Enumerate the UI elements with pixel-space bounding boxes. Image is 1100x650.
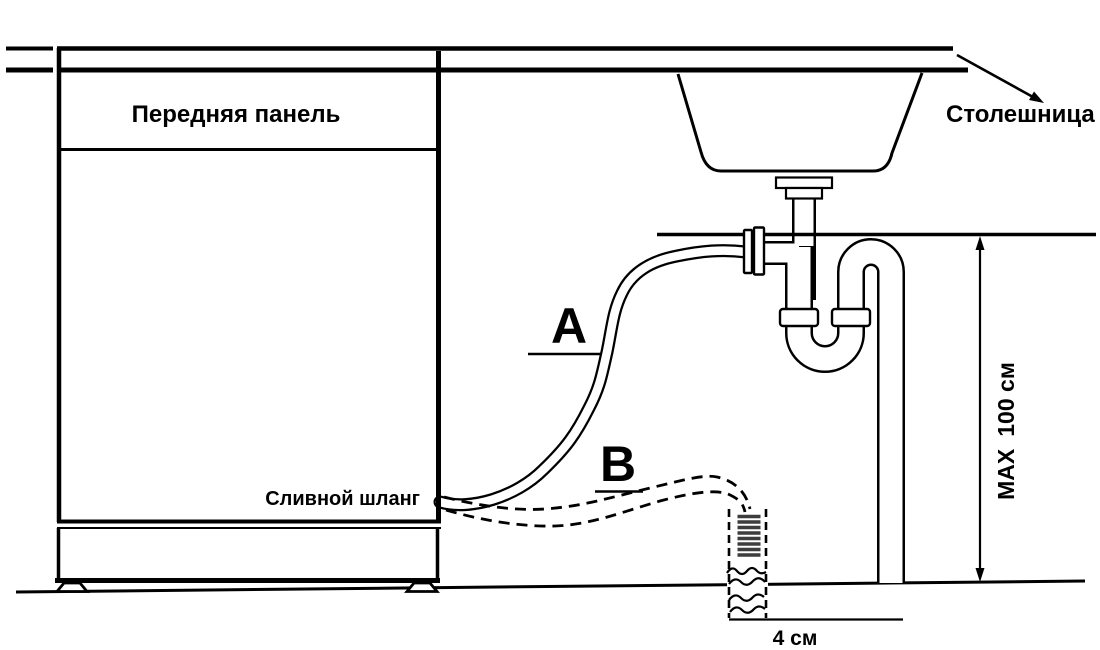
drain-hose-label: Сливной шланг: [240, 488, 420, 511]
standpipe: [727, 509, 768, 619]
option-b-label: B: [587, 437, 649, 491]
countertop-pointer-arrow: [957, 55, 1044, 103]
hose-connector-fitting: [744, 228, 764, 275]
countertop-label: Столешница: [946, 101, 1098, 129]
standpipe-width-label: 4 см: [752, 627, 838, 650]
max-height-value: 100 см: [993, 362, 1020, 437]
max-height-dimension-arrow: [976, 236, 985, 582]
max-prefix-text: MAX: [993, 449, 1020, 500]
installation-diagram: Передняя панель Столешница Сливной шланг…: [0, 0, 1100, 650]
sink-drain-flange: [776, 178, 832, 199]
countertop-lines: [6, 49, 968, 71]
trap-nuts: [780, 309, 870, 326]
max-height-label: MAX 100 см: [991, 351, 1021, 511]
front-panel-label: Передняя панель: [44, 101, 428, 129]
option-a-label: A: [538, 299, 600, 353]
sink-basin: [678, 73, 922, 171]
sink-trap-pipes: [760, 193, 891, 583]
